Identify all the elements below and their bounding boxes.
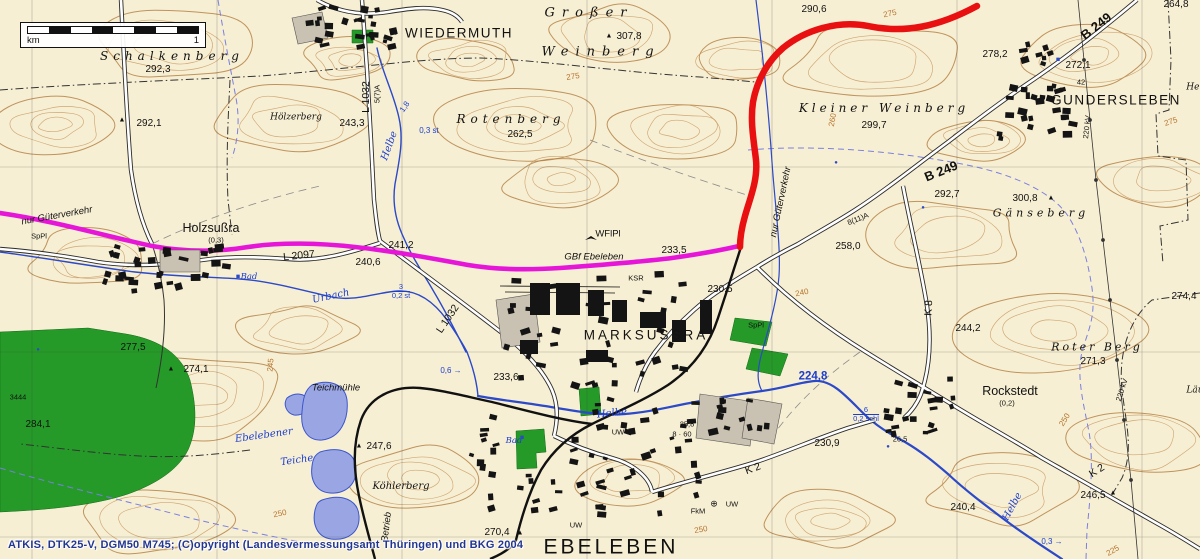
scale-segment [177, 27, 198, 33]
scale-bar-unit: km [27, 35, 40, 46]
scale-segment [156, 27, 177, 33]
scale-segment [49, 27, 70, 33]
scale-segment [71, 27, 92, 33]
map-attribution: ATKIS, DTK25-V, DGM50 M745; (C)opyright … [8, 539, 523, 551]
scale-bar-value: 1 [194, 35, 199, 46]
map-graphics [0, 0, 1200, 559]
map-canvas[interactable]: Schalkenberg292,3292,1HölzerbergWIEDERMU… [0, 0, 1200, 559]
scale-segment [113, 27, 134, 33]
scale-bar-segments [27, 26, 199, 34]
scale-segment [134, 27, 155, 33]
scale-segment [92, 27, 113, 33]
scale-segment [28, 27, 49, 33]
scale-bar: km 1 [20, 22, 206, 48]
